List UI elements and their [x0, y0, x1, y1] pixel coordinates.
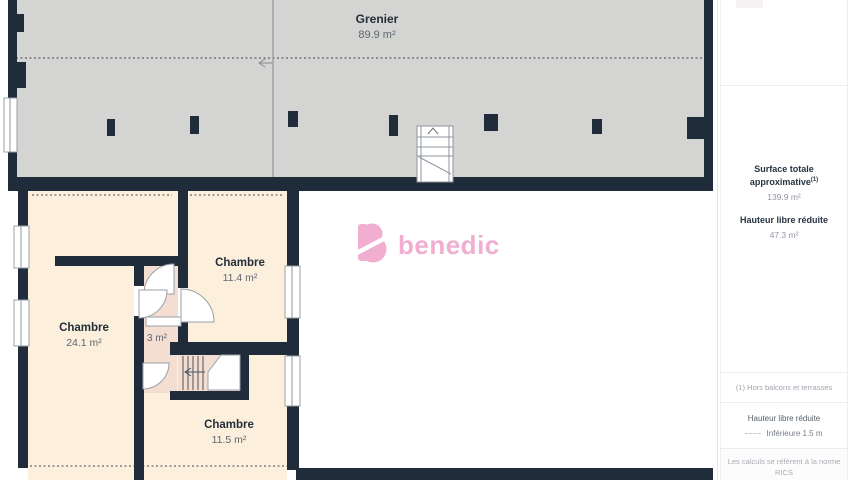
bedroom-24-floor [28, 266, 134, 480]
window [14, 226, 29, 268]
room-name: Chambre [215, 257, 265, 269]
info-panel: Surface totale approximative(1) 139.9 m²… [717, 0, 850, 480]
disclaimer-section: Les calculs se réfèrent à la norme RICS … [720, 449, 848, 480]
window [4, 98, 17, 152]
wall-segment [134, 316, 144, 480]
wall-segment [240, 350, 249, 400]
attic-area: 89.9 m² [358, 29, 396, 41]
window [285, 356, 300, 406]
floorplan-page: Grenier 89.9 m² Chambre 24.1 m² Chambre … [0, 0, 850, 480]
dashed-line-swatch [745, 433, 761, 434]
legend-row: Inférieure 1.5 m [721, 429, 847, 438]
wall-pier [17, 14, 24, 32]
wall-segment [8, 0, 17, 180]
legend-title: Hauteur libre réduite [721, 403, 847, 423]
room-area: 24.1 m² [66, 337, 102, 349]
disclaimer-text: Les calculs se réfèrent à la norme RICS … [721, 449, 847, 480]
post [484, 114, 498, 131]
summary-section: Surface totale approximative(1) 139.9 m²… [720, 86, 848, 373]
cropped-logo-block [736, 0, 763, 8]
room-name: Chambre [59, 322, 109, 334]
wall-segment [8, 177, 713, 191]
wall-segment [296, 468, 713, 480]
window [14, 300, 29, 346]
wall-segment [704, 0, 713, 191]
post [190, 116, 199, 134]
legend-item-label: Inférieure 1.5 m [766, 429, 822, 438]
bedroom-24-floor-upper [28, 191, 178, 266]
wall-pier [17, 62, 26, 88]
attic-floor [16, 0, 704, 180]
floorplan-drawing: Grenier 89.9 m² Chambre 24.1 m² Chambre … [0, 0, 717, 480]
legend-section: Hauteur libre réduite Inférieure 1.5 m [720, 403, 848, 449]
post [288, 111, 298, 127]
post [107, 119, 115, 136]
room-area: 11.5 m² [212, 434, 247, 446]
benedic-logo-icon [351, 224, 393, 263]
attic-hatch-ladder-icon [417, 126, 453, 182]
wall-pier [687, 117, 704, 139]
room-area: 11.4 m² [223, 272, 258, 284]
wall-segment [287, 189, 299, 470]
reduced-height-value: 47.3 m² [721, 230, 847, 240]
window [285, 266, 300, 318]
footnote-text: (1) Hors balcons et terrasses [721, 383, 847, 392]
surface-total-value: 139.9 m² [721, 192, 847, 202]
surface-total-label: Surface totale approximative(1) [721, 86, 847, 188]
post [592, 119, 602, 134]
reduced-height-label: Hauteur libre réduite [721, 215, 847, 226]
benedic-logo: benedic [351, 224, 500, 263]
wall-segment [134, 266, 144, 286]
room-area: 3 m² [147, 333, 168, 344]
benedic-wordmark: benedic [398, 230, 500, 260]
footnote-section: (1) Hors balcons et terrasses [720, 373, 848, 403]
panel-header [720, 0, 848, 86]
wall-segment [170, 391, 248, 400]
wall-segment [178, 180, 188, 288]
room-name: Chambre [204, 419, 254, 431]
footnote-marker: (1) [811, 177, 818, 183]
post [389, 115, 398, 136]
wall-segment [170, 342, 299, 355]
attic-name: Grenier [356, 12, 399, 26]
